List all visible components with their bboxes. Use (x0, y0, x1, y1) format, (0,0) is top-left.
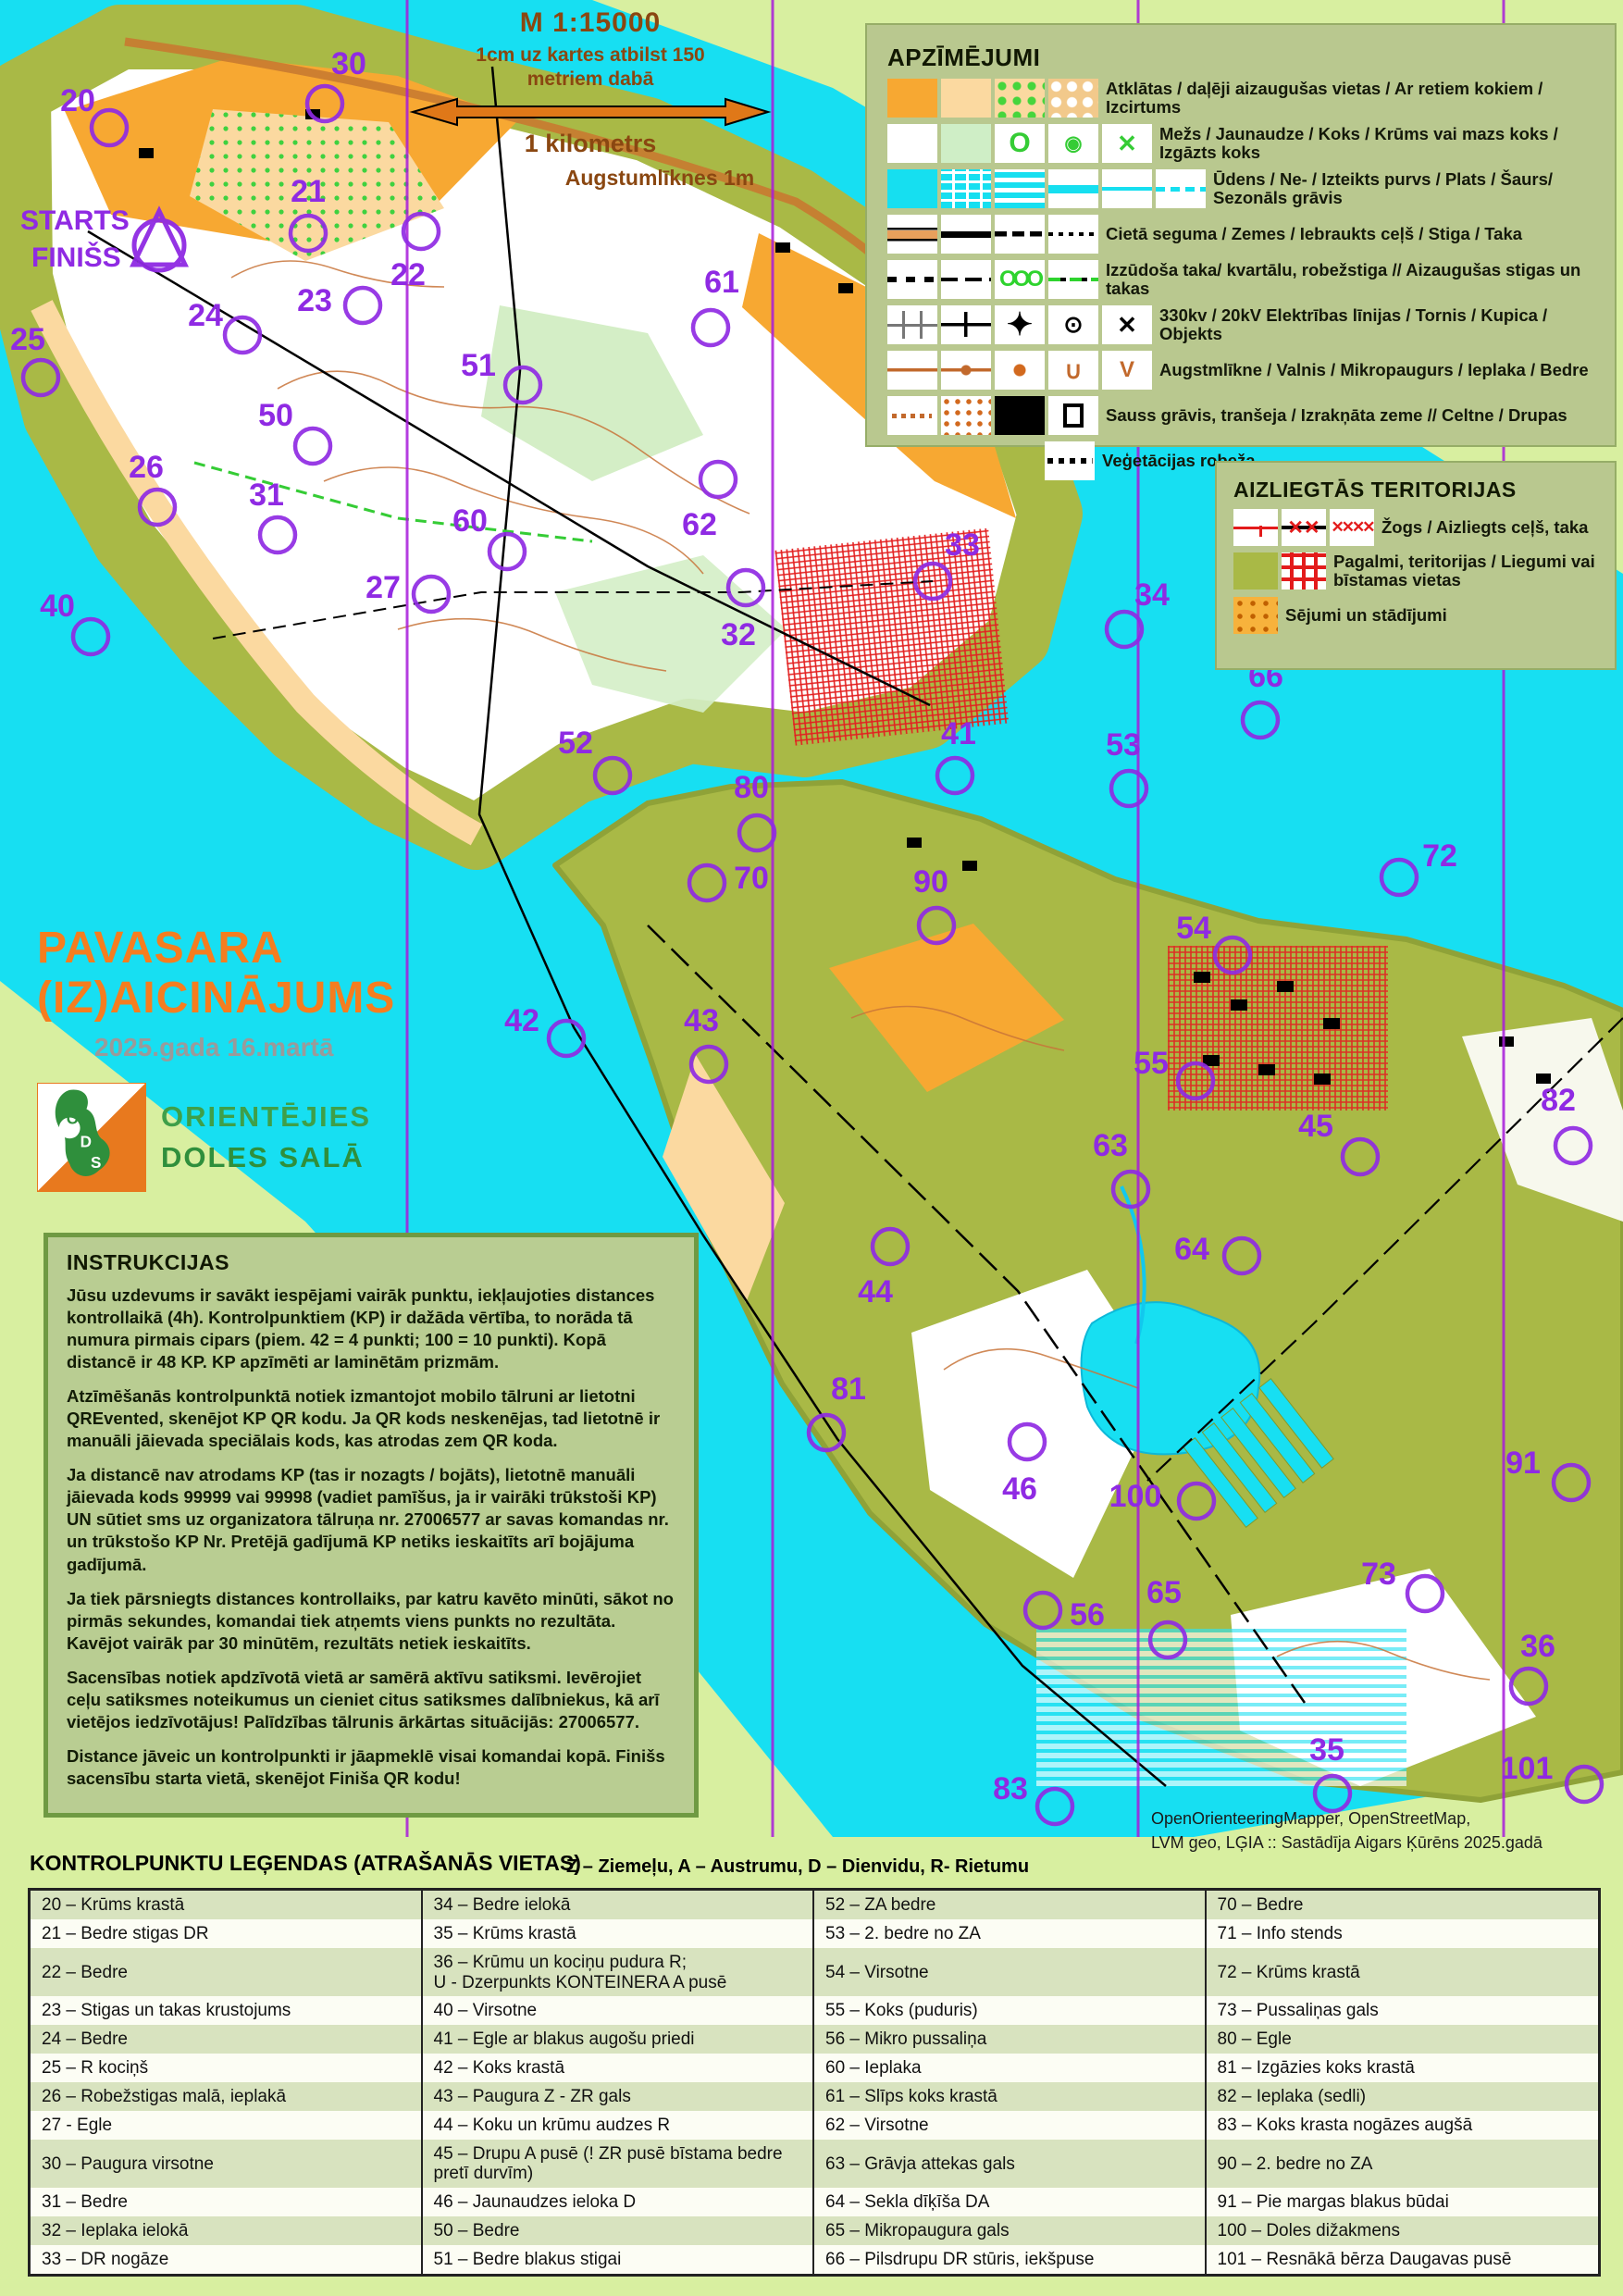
glyph-x-black-swatch (1102, 305, 1152, 344)
restricted-title: AIZLIEGTĀS TERITORIJAS (1233, 478, 1602, 503)
compass-abbreviations: Z – Ziemeļu, A – Austrumu, D – Dienvidu,… (566, 1856, 1029, 1878)
solid-orange-swatch (887, 79, 937, 118)
club-logo: O D S (37, 1083, 146, 1192)
club-name-line1: ORIENTĒJIES (161, 1100, 371, 1134)
brown-u-swatch (1048, 351, 1098, 390)
kp-cell: 70 – Bedre (1207, 1891, 1599, 1919)
orange-dotgrid-swatch (1233, 597, 1278, 634)
kp-cell: 71 – Info stends (1207, 1919, 1599, 1948)
solid-olive-swatch (1233, 552, 1278, 590)
svg-text:32: 32 (721, 617, 756, 652)
svg-text:63: 63 (1093, 1128, 1128, 1163)
kp-cell: 54 – Virsotne (814, 1948, 1207, 1997)
svg-text:61: 61 (704, 265, 739, 300)
svg-text:31: 31 (249, 478, 284, 513)
legend-row-label: Ūdens / Ne- / Izteikts purvs / Plats / Š… (1209, 170, 1600, 208)
legend-row-label: Mežs / Jaunaudze / Koks / Krūms vai mazs… (1156, 125, 1600, 163)
event-title-block: PAVASARA (IZ)AICINĀJUMS 2025.gada 16.mar… (37, 924, 472, 1192)
kp-cell: 44 – Koku un krūmu audzes R (423, 2111, 815, 2140)
svg-text:73: 73 (1361, 1557, 1396, 1592)
kp-cell: 83 – Koks krasta nogāzes augšā (1207, 2111, 1599, 2140)
scale-note-line1: 1cm uz kartes atbilst 150 (407, 44, 774, 67)
legend-rows: Atklātas / daļēji aizaugušas vietas / Ar… (887, 79, 1600, 480)
control-table-title: KONTROLPUNKTU LEĢENDAS (ATRAŠANĀS VIETAS… (30, 1851, 581, 1876)
kp-cell: 64 – Sekla dīķīša DA (814, 2188, 1207, 2216)
cyan-thinline-swatch (1102, 169, 1152, 208)
instructions-title: INSTRUKCIJAS (67, 1250, 675, 1275)
svg-text:65: 65 (1146, 1575, 1182, 1610)
svg-text:64: 64 (1174, 1232, 1209, 1267)
event-title-line2: (IZ)AICINĀJUMS (37, 974, 472, 1024)
svg-text:90: 90 (913, 864, 948, 900)
svg-text:100: 100 (1109, 1479, 1162, 1514)
instructions-paragraph: Atzīmēšanās kontrolpunktā notiek izmanto… (67, 1385, 675, 1452)
brown-v-swatch (1102, 351, 1152, 390)
svg-text:50: 50 (258, 398, 293, 433)
svg-text:42: 42 (504, 1003, 539, 1038)
svg-text:81: 81 (831, 1371, 866, 1407)
dots-white-tan-swatch (1048, 79, 1098, 118)
legend-row-label: Augstmlīkne / Valnis / Mikropaugurs / Ie… (1156, 361, 1600, 379)
svg-text:41: 41 (941, 716, 976, 751)
kp-cell: 90 – 2. bedre no ZA (1207, 2140, 1599, 2189)
solid-cyan-swatch (887, 169, 937, 208)
kp-cell: 55 – Koks (puduris) (814, 1996, 1207, 2025)
dash-long-swatch (941, 260, 991, 299)
kp-cell: 42 – Koks krastā (423, 2054, 815, 2082)
kp-cell: 31 – Bedre (31, 2188, 423, 2216)
kp-cell: 63 – Grāvja attekas gals (814, 2140, 1207, 2189)
svg-text:21: 21 (291, 174, 326, 209)
svg-text:72: 72 (1422, 838, 1457, 874)
solid-white-swatch (887, 124, 937, 163)
kp-cell: 81 – Izgāzies koks krastā (1207, 2054, 1599, 2082)
instructions-paragraph: Ja distancē nav atrodams KP (tas ir noza… (67, 1464, 675, 1575)
black-square-swatch (995, 396, 1045, 435)
kp-cell: 20 – Krūms krastā (31, 1891, 423, 1919)
svg-text:44: 44 (858, 1274, 893, 1309)
legend-row-label: Pagalmi, teritorijas / Liegumi vai bīsta… (1330, 552, 1602, 590)
svg-text:40: 40 (40, 589, 75, 624)
map-credits: OpenOrienteeringMapper, OpenStreetMap, L… (1151, 1806, 1542, 1855)
kp-cell: 32 – Ieplaka ielokā (31, 2216, 423, 2245)
svg-text:D: D (81, 1133, 92, 1150)
legend-row-label: 330kv / 20kV Elektrības līnijas / Tornis… (1156, 306, 1600, 344)
svg-text:26: 26 (129, 450, 164, 485)
kp-cell: 33 – DR nogāze (31, 2245, 423, 2274)
svg-text:43: 43 (684, 1003, 719, 1038)
svg-text:20: 20 (60, 83, 95, 118)
legend-row-label: Sauss grāvis, tranšeja / Izrakņāta zeme … (1102, 406, 1600, 425)
legend-row: Mežs / Jaunaudze / Koks / Krūms vai mazs… (887, 124, 1600, 163)
svg-text:60: 60 (452, 503, 488, 539)
kp-cell: 46 – Jaunaudzes ieloka D (423, 2188, 815, 2216)
start-label-line1: STARTS (20, 205, 130, 236)
brown-dotgrid-swatch (941, 396, 991, 435)
svg-text:O: O (67, 1110, 79, 1127)
svg-text:30: 30 (331, 46, 366, 81)
instructions-paragraph: Ja tiek pārsniegts distances kontrollaik… (67, 1588, 675, 1655)
legend-row-label: Izzūdoša taka/ kvartālu, robežstiga // A… (1102, 261, 1600, 299)
kp-cell: 51 – Bedre blakus stigai (423, 2245, 815, 2274)
kp-cell: 45 – Drupu A pusē (! ZR pusē bīstama bed… (423, 2140, 815, 2189)
kp-cell: 41 – Egle ar blakus augošu priedi (423, 2025, 815, 2054)
legend-panel: APZĪMĒJUMI Atklātas / daļēji aizaugušas … (865, 23, 1617, 447)
pylon-gray-swatch (887, 305, 937, 344)
legend-row: Ūdens / Ne- / Izteikts purvs / Plats / Š… (887, 169, 1600, 208)
kp-cell: 101 – Resnākā bērza Daugavas pusē (1207, 2245, 1599, 2274)
kp-cell: 25 – R kociņš (31, 2054, 423, 2082)
kp-cell: 53 – 2. bedre no ZA (814, 1919, 1207, 1948)
svg-text:27: 27 (365, 570, 401, 605)
svg-text:33: 33 (945, 527, 980, 563)
brown-line-dot-swatch (941, 351, 991, 390)
kp-cell: 80 – Egle (1207, 2025, 1599, 2054)
black-dotline-swatch (1045, 441, 1095, 480)
svg-text:54: 54 (1176, 911, 1211, 946)
kp-cell: 50 – Bedre (423, 2216, 815, 2245)
kp-cell: 66 – Pilsdrupu DR stūris, iekšpuse (814, 2245, 1207, 2274)
svg-text:56: 56 (1070, 1597, 1105, 1632)
start-label-line2: FINIŠS (31, 242, 121, 273)
cyan-dashline-swatch (1156, 169, 1206, 208)
event-date: 2025.gada 16.martā (94, 1033, 472, 1062)
svg-text:23: 23 (297, 283, 332, 318)
solid-paleorange-swatch (941, 79, 991, 118)
kp-cell: 36 – Krūmu un kociņu pudura R; U - Dzerp… (423, 1948, 815, 1997)
legend-row: Cietā seguma / Zemes / Iebraukts ceļš / … (887, 215, 1600, 254)
legend-row: 330kv / 20kV Elektrības līnijas / Tornis… (887, 305, 1600, 344)
kp-cell: 52 – ZA bedre (814, 1891, 1207, 1919)
kp-cell: 60 – Ieplaka (814, 2054, 1207, 2082)
glyph-x-swatch (1102, 124, 1152, 163)
red-xxx-swatch (1330, 509, 1374, 546)
svg-text:46: 46 (1002, 1471, 1037, 1507)
svg-text:91: 91 (1505, 1446, 1541, 1481)
line-thick-swatch (941, 215, 991, 254)
cyan-line-swatch (1048, 169, 1098, 208)
dots-green-tan-swatch (995, 79, 1045, 118)
svg-text:34: 34 (1134, 577, 1170, 613)
kp-cell: 26 – Robežstigas malā, ieplakā (31, 2082, 423, 2111)
dash-sparse-swatch (887, 260, 937, 299)
line-dots-swatch (1048, 215, 1098, 254)
line-dash-swatch (995, 215, 1045, 254)
instructions-paragraph: Jūsu uzdevums ir savākt iespējami vairāk… (67, 1285, 675, 1373)
scale-bar-arrow (407, 96, 774, 128)
kp-cell: 65 – Mikropaugura gals (814, 2216, 1207, 2245)
glyph-ring-swatch (995, 124, 1045, 163)
kp-cell: 21 – Bedre stigas DR (31, 1919, 423, 1948)
scale-bar-label: 1 kilometrs (407, 130, 774, 158)
brown-dot-swatch (995, 351, 1045, 390)
scale-note-line2: metriem dabā (407, 68, 774, 91)
kp-cell: 24 – Bedre (31, 2025, 423, 2054)
svg-text:82: 82 (1541, 1083, 1576, 1118)
kp-cell: 23 – Stigas un takas krustojums (31, 1996, 423, 2025)
svg-text:80: 80 (734, 770, 769, 805)
kp-cell: 82 – Ieplaka (sedli) (1207, 2082, 1599, 2111)
instructions-body: Jūsu uzdevums ir savākt iespējami vairāk… (67, 1285, 675, 1790)
marsh-stripes (1036, 1629, 1406, 1786)
svg-text:70: 70 (734, 861, 769, 896)
legend-row: Augstmlīkne / Valnis / Mikropaugurs / Ie… (887, 351, 1600, 390)
legend-row-label: Cietā seguma / Zemes / Iebraukts ceļš / … (1102, 225, 1600, 243)
green-rings-swatch (995, 260, 1045, 299)
svg-text:35: 35 (1309, 1732, 1344, 1768)
control-descriptions-table: 20 – Krūms krastā34 – Bedre ielokā52 – Z… (28, 1888, 1601, 2277)
cyan-bricks-swatch (941, 169, 991, 208)
restricted-row: Žogs / Aizliegts ceļš, taka (1233, 509, 1602, 546)
kp-cell: 73 – Pussaliņas gals (1207, 1996, 1599, 2025)
legend-row: Izzūdoša taka/ kvartālu, robežstiga // A… (887, 260, 1600, 299)
restricted-areas-panel: AIZLIEGTĀS TERITORIJAS Žogs / Aizliegts … (1215, 461, 1617, 670)
pylon-black-swatch (941, 305, 991, 344)
credits-line1: OpenOrienteeringMapper, OpenStreetMap, (1151, 1806, 1542, 1831)
svg-text:101: 101 (1501, 1751, 1554, 1786)
svg-text:83: 83 (993, 1771, 1028, 1806)
kp-cell: 22 – Bedre (31, 1948, 423, 1997)
svg-text:62: 62 (682, 507, 717, 542)
instructions-paragraph: Sacensības notiek apdzīvotā vietā ar sam… (67, 1667, 675, 1733)
restricted-row: Sējumi un stādījumi (1233, 597, 1602, 634)
svg-text:S: S (91, 1154, 101, 1172)
cyan-stripes-swatch (995, 169, 1045, 208)
kp-cell: 100 – Doles dižakmens (1207, 2216, 1599, 2245)
instructions-panel: INSTRUKCIJAS Jūsu uzdevums ir savākt ies… (43, 1233, 699, 1818)
red-xx-swatch (1282, 509, 1326, 546)
green-dash-swatch (1048, 260, 1098, 299)
fence-red-swatch (1233, 509, 1278, 546)
legend-row: Atklātas / daļēji aizaugušas vietas / Ar… (887, 79, 1600, 118)
kp-cell: 40 – Virsotne (423, 1996, 815, 2025)
kp-cell: 30 – Paugura virsotne (31, 2140, 423, 2189)
svg-text:45: 45 (1298, 1109, 1333, 1144)
kp-cell: 62 – Virsotne (814, 2111, 1207, 2140)
legend-row-label: Atklātas / daļēji aizaugušas vietas / Ar… (1102, 80, 1600, 118)
club-name-line2: DOLES SALĀ (161, 1141, 371, 1174)
svg-text:51: 51 (461, 348, 496, 383)
svg-text:25: 25 (10, 322, 45, 357)
restricted-row: Pagalmi, teritorijas / Liegumi vai bīsta… (1233, 552, 1602, 590)
event-title-line1: PAVASARA (37, 924, 472, 974)
legend-title: APZĪMĒJUMI (887, 43, 1600, 72)
kp-cell: 91 – Pie margas blakus būdai (1207, 2188, 1599, 2216)
restricted-rows: Žogs / Aizliegts ceļš, takaPagalmi, teri… (1233, 509, 1602, 634)
contour-interval-label: Augstumlīknes 1m (546, 166, 774, 191)
brown-line-swatch (887, 351, 937, 390)
svg-text:55: 55 (1134, 1046, 1169, 1081)
map-scale: M 1:15000 (407, 7, 774, 39)
kp-cell: 27 - Egle (31, 2111, 423, 2140)
glyph-diamond-swatch (995, 305, 1045, 344)
solid-palegreen-swatch (941, 124, 991, 163)
kp-cell: 34 – Bedre ielokā (423, 1891, 815, 1919)
glyph-dotgreen-swatch (1048, 124, 1098, 163)
kp-cell: 35 – Krūms krastā (423, 1919, 815, 1948)
kp-cell: 61 – Slīps koks krastā (814, 2082, 1207, 2111)
kp-cell: 43 – Paugura Z - ZR gals (423, 2082, 815, 2111)
legend-row-label: Sējumi un stādījumi (1282, 606, 1602, 625)
svg-text:22: 22 (390, 257, 426, 292)
svg-text:24: 24 (188, 298, 223, 333)
kp-cell: 72 – Krūms krastā (1207, 1948, 1599, 1997)
road-tan-swatch (887, 215, 937, 254)
brown-dotline-swatch (887, 396, 937, 435)
kp-cell: 56 – Mikro pussaliņa (814, 2025, 1207, 2054)
legend-row: Sauss grāvis, tranšeja / Izrakņāta zeme … (887, 396, 1600, 435)
red-grid-swatch (1282, 552, 1326, 590)
svg-text:52: 52 (558, 726, 593, 761)
instructions-paragraph: Distance jāveic un kontrolpunkti ir jāap… (67, 1745, 675, 1790)
credits-line2: LVM geo, LĢIA :: Sastādīja Aigars Ķūrēns… (1151, 1831, 1542, 1855)
svg-text:36: 36 (1520, 1629, 1555, 1664)
glyph-o-swatch (1048, 305, 1098, 344)
scale-block: M 1:15000 1cm uz kartes atbilst 150 metr… (407, 7, 774, 191)
svg-text:53: 53 (1106, 727, 1141, 763)
black-square-outline-swatch (1048, 396, 1098, 435)
map-poster: STARTS FINIŠS 20212223242526273031323334… (0, 0, 1623, 2296)
legend-row-label: Žogs / Aizliegts ceļš, taka (1378, 518, 1602, 537)
